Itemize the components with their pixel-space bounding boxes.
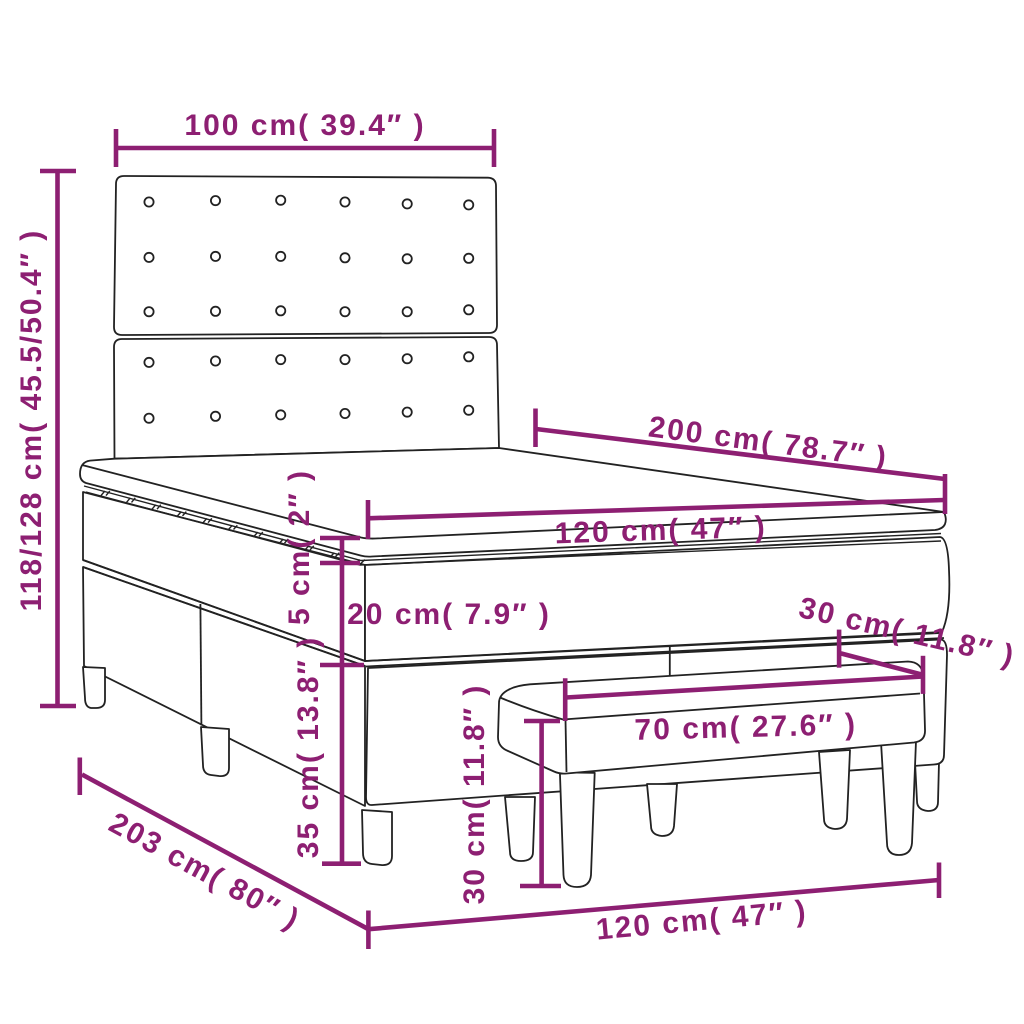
svg-text:5 cm( 2″ ): 5 cm( 2″ ) <box>283 469 316 625</box>
svg-text:35 cm( 13.8″ ): 35 cm( 13.8″ ) <box>292 636 325 858</box>
svg-text:30 cm( 11.8″ ): 30 cm( 11.8″ ) <box>458 684 491 905</box>
svg-text:100 cm( 39.4″ ): 100 cm( 39.4″ ) <box>184 109 425 142</box>
svg-text:20 cm( 7.9″ ): 20 cm( 7.9″ ) <box>347 598 551 631</box>
svg-text:120 cm( 47″ ): 120 cm( 47″ ) <box>554 511 767 551</box>
svg-text:70 cm( 27.6″ ): 70 cm( 27.6″ ) <box>634 708 857 747</box>
svg-text:118/128 cm( 45.5/50.4″ ): 118/128 cm( 45.5/50.4″ ) <box>15 229 48 612</box>
